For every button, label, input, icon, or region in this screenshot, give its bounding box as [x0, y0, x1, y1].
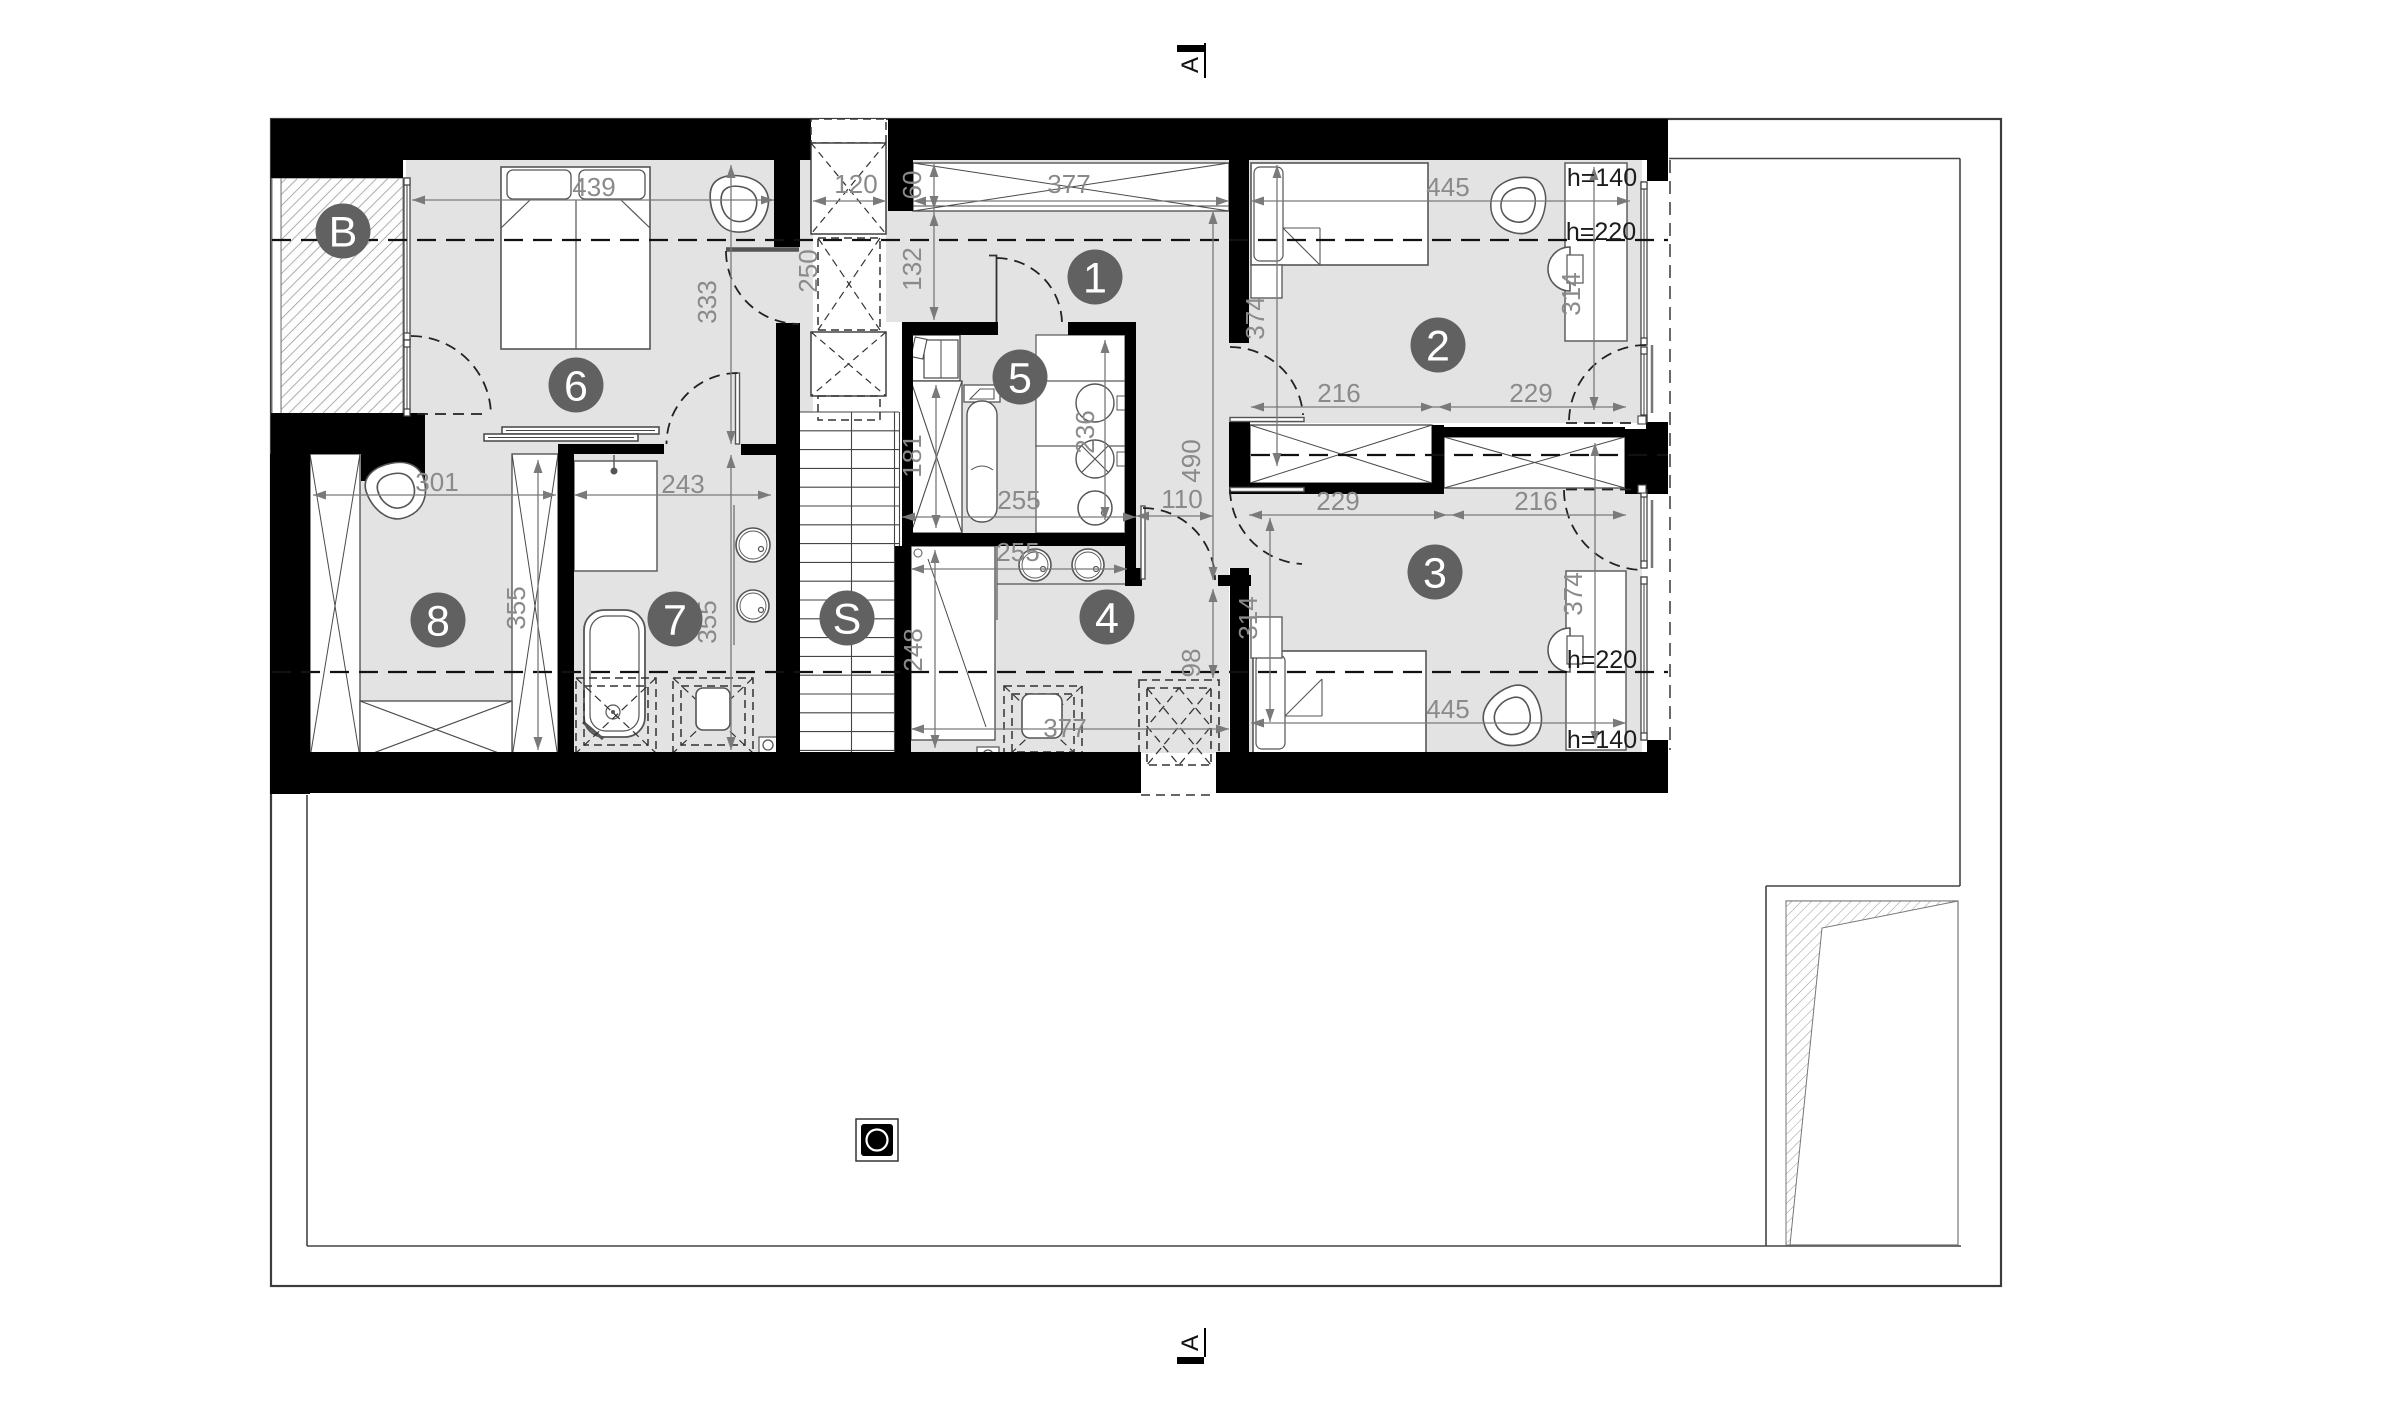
- svg-text:h=140: h=140: [1567, 164, 1637, 192]
- svg-text:2: 2: [1426, 322, 1450, 370]
- svg-text:314: 314: [1233, 596, 1263, 639]
- svg-text:h=220: h=220: [1567, 646, 1637, 674]
- svg-text:h=140: h=140: [1567, 726, 1637, 754]
- svg-text:229: 229: [1509, 378, 1552, 408]
- svg-text:490: 490: [1176, 439, 1206, 482]
- svg-text:236: 236: [1070, 410, 1100, 453]
- svg-text:445: 445: [1426, 172, 1469, 202]
- svg-text:120: 120: [834, 169, 877, 199]
- svg-text:S: S: [833, 595, 862, 643]
- svg-text:255: 255: [997, 485, 1040, 515]
- svg-text:132: 132: [897, 247, 927, 290]
- svg-text:243: 243: [661, 469, 704, 499]
- svg-text:377: 377: [1043, 713, 1086, 743]
- svg-text:181: 181: [897, 434, 927, 477]
- svg-text:229: 229: [1316, 486, 1359, 516]
- svg-text:60: 60: [897, 171, 927, 200]
- svg-text:374: 374: [1240, 296, 1270, 339]
- svg-text:255: 255: [996, 537, 1039, 567]
- svg-text:8: 8: [426, 597, 450, 645]
- svg-text:A: A: [1177, 1335, 1204, 1351]
- svg-text:248: 248: [898, 628, 928, 671]
- svg-text:1: 1: [1083, 254, 1107, 302]
- svg-text:5: 5: [1008, 354, 1032, 402]
- svg-text:314: 314: [1556, 272, 1586, 315]
- svg-text:301: 301: [415, 467, 458, 497]
- svg-text:6: 6: [564, 362, 588, 410]
- svg-text:98: 98: [1176, 649, 1206, 678]
- svg-text:377: 377: [1047, 169, 1090, 199]
- svg-text:4: 4: [1095, 594, 1119, 642]
- svg-text:445: 445: [1426, 694, 1469, 724]
- svg-text:333: 333: [692, 280, 722, 323]
- svg-text:110: 110: [1161, 484, 1202, 514]
- svg-text:216: 216: [1317, 378, 1360, 408]
- svg-text:355: 355: [501, 586, 531, 629]
- svg-text:3: 3: [1423, 549, 1447, 597]
- svg-text:250: 250: [793, 249, 823, 292]
- svg-text:374: 374: [1558, 572, 1588, 615]
- svg-text:216: 216: [1514, 486, 1557, 516]
- svg-text:7: 7: [663, 596, 687, 644]
- svg-text:A: A: [1177, 57, 1204, 73]
- svg-text:h=220: h=220: [1566, 218, 1636, 246]
- svg-text:B: B: [329, 208, 358, 256]
- svg-text:439: 439: [572, 172, 615, 202]
